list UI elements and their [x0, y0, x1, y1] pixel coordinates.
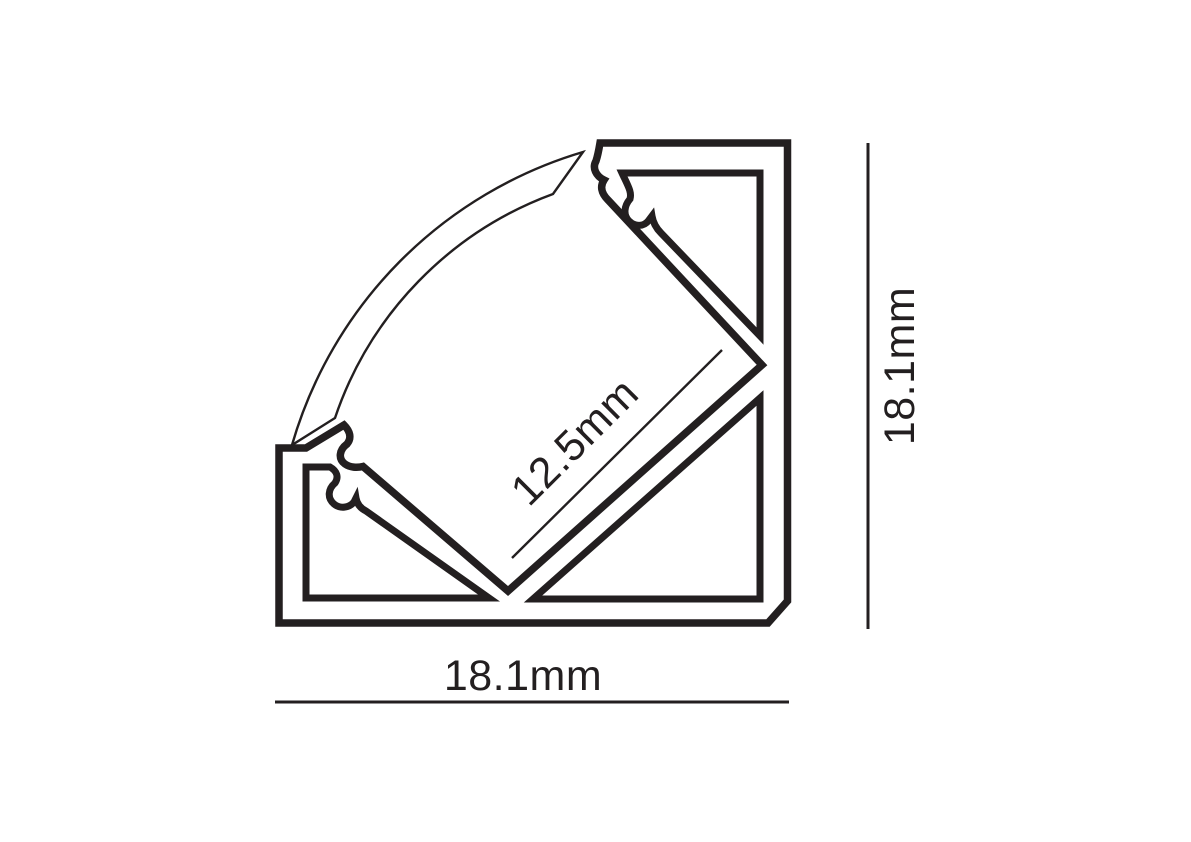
width-dimension-label: 18.1mm — [444, 652, 602, 700]
cavity-bottom-left — [306, 467, 489, 598]
profile-technical-drawing: 12.5mm 18.1mm 18.1mm — [0, 0, 1191, 842]
cavity-top-right — [622, 173, 760, 336]
height-dimension-label: 18.1mm — [876, 287, 924, 445]
profile-body-outline — [279, 143, 788, 623]
drawing-canvas: 12.5mm 18.1mm 18.1mm — [0, 0, 1191, 842]
channel-dimension-label: 12.5mm — [502, 369, 648, 515]
diffuser-lens-outline — [292, 152, 583, 445]
